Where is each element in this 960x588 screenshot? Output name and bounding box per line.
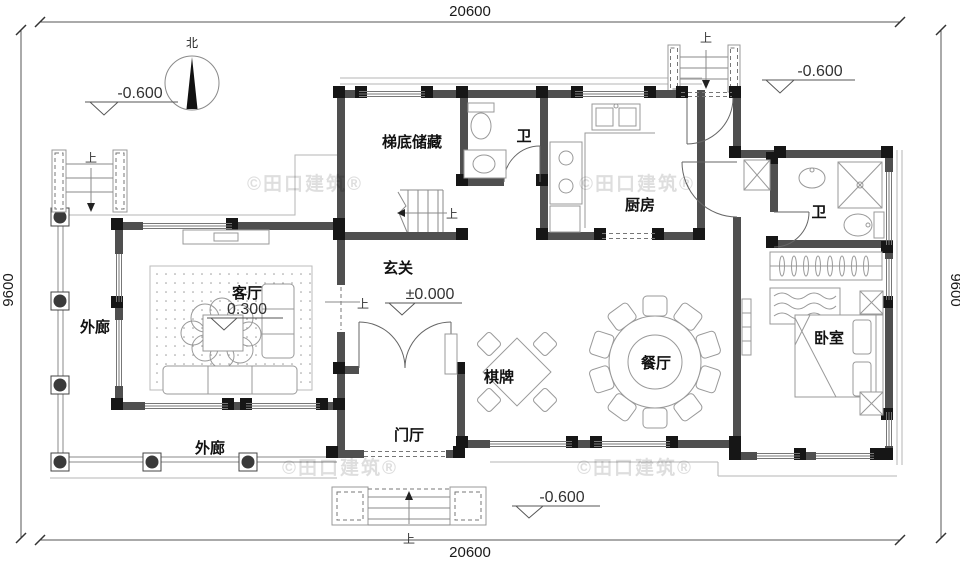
up-label-entry-steps: 上 xyxy=(403,532,415,546)
bath-right-fixtures xyxy=(744,160,884,238)
elevation-value-entry: ±0.000 xyxy=(406,286,455,303)
dimension-right: 9600 xyxy=(936,25,960,543)
watermark-1: ©田口建筑® xyxy=(247,172,363,195)
dim-bottom-value: 20600 xyxy=(449,544,491,561)
elevation-marker-entry-hall: ±0.000 xyxy=(385,286,462,315)
elevation-value-top-left: -0.600 xyxy=(117,85,162,102)
window-living-west-1 xyxy=(117,254,122,302)
window-bath-east xyxy=(887,172,892,245)
entry-porch-steps: 上 xyxy=(332,487,486,546)
window-kitchen-north xyxy=(575,92,648,97)
room-label-living: 客厅 xyxy=(231,284,262,302)
exterior-stair-northeast: 上 xyxy=(668,31,740,92)
dimension-left: 9600 xyxy=(0,25,26,543)
room-label-bedroom: 卧室 xyxy=(814,329,844,347)
room-label-games: 棋牌 xyxy=(484,368,514,386)
bed xyxy=(795,315,883,397)
closet xyxy=(770,252,882,280)
sink-top xyxy=(464,150,506,178)
opening-main-entry xyxy=(364,452,446,457)
elevation-marker-top-left: -0.600 xyxy=(85,85,178,115)
north-arrow-icon: 北 xyxy=(165,36,219,110)
watermark-4: ©田口建筑® xyxy=(577,456,693,479)
north-label: 北 xyxy=(186,36,198,50)
elevation-value-top-right: -0.600 xyxy=(797,63,842,80)
up-label-northeast-stair: 上 xyxy=(700,31,712,45)
room-label-bath-top: 卫 xyxy=(516,128,531,145)
dim-left-value: 9600 xyxy=(0,273,17,306)
window-living-north xyxy=(143,224,232,229)
nightstand-south xyxy=(860,392,883,415)
room-label-veranda-bottom: 外廊 xyxy=(194,439,225,457)
opening-living-step xyxy=(325,287,360,330)
room-label-entry-hall: 玄关 xyxy=(383,259,413,277)
toilet-top xyxy=(468,103,494,139)
room-label-stair-storage: 梯底储藏 xyxy=(382,133,442,151)
room-label-kitchen: 厨房 xyxy=(625,196,655,214)
floor-plan-svg: 20600 20600 9600 9600 北 xyxy=(0,0,960,588)
door-bath-top xyxy=(504,146,540,182)
up-label-northwest-stair: 上 xyxy=(85,151,97,165)
window-east-2 xyxy=(887,259,892,300)
terrace-outline xyxy=(50,462,897,478)
room-label-dining: 餐厅 xyxy=(641,354,671,372)
exterior-stair-northwest: 上 xyxy=(52,150,127,212)
watermark-2: ©田口建筑® xyxy=(579,172,695,195)
window-living-south-1 xyxy=(145,404,228,409)
elevation-value-bottom: -0.600 xyxy=(539,489,584,506)
floor-plan-page: 20600 20600 9600 9600 北 xyxy=(0,0,960,588)
console-table xyxy=(445,334,457,374)
room-label-foyer: 门厅 xyxy=(394,426,424,444)
room-label-veranda-left: 外廊 xyxy=(79,318,110,336)
dim-right-value: 9600 xyxy=(947,273,960,306)
door-rear-landing xyxy=(681,93,733,145)
window-dining-south-1 xyxy=(490,442,572,447)
elevation-marker-top-right: -0.600 xyxy=(762,63,855,93)
window-bedroom-south-2 xyxy=(816,454,874,459)
sofa-south xyxy=(163,366,297,394)
elevation-marker-bottom: -0.600 xyxy=(512,489,600,518)
bath-top-fixtures xyxy=(464,103,506,178)
nightstand-north xyxy=(860,291,883,314)
elevation-value-living: 0.300 xyxy=(227,301,267,318)
window-dining-south-2 xyxy=(594,442,670,447)
sink-right xyxy=(799,168,825,188)
kitchen-sink xyxy=(592,104,640,130)
door-foyer-double xyxy=(359,322,451,368)
toilet-right xyxy=(844,212,884,238)
up-label-internal-stair: 上 xyxy=(446,207,458,221)
kitchen-stove xyxy=(550,142,582,204)
window-storage-north xyxy=(359,92,425,97)
room-label-bath-right: 卫 xyxy=(811,204,826,221)
dimension-bottom: 20600 xyxy=(35,535,905,561)
shower xyxy=(838,162,882,208)
bedroom-furniture xyxy=(742,288,883,415)
up-label-living-step: 上 xyxy=(357,297,369,311)
dimension-top: 20600 xyxy=(35,3,905,27)
sofa-east xyxy=(262,284,294,358)
shaft-hatch xyxy=(744,160,770,190)
bedroom-cabinet xyxy=(742,299,751,355)
window-bedroom-south-1 xyxy=(757,454,800,459)
watermark-3: ©田口建筑® xyxy=(282,456,398,479)
internal-stair: 上 xyxy=(397,190,458,232)
opening-kitchen xyxy=(602,234,658,239)
window-living-west-2 xyxy=(117,320,122,386)
dim-top-value: 20600 xyxy=(449,3,491,20)
kitchen-cabinet xyxy=(550,206,580,232)
window-living-south-2 xyxy=(246,404,320,409)
